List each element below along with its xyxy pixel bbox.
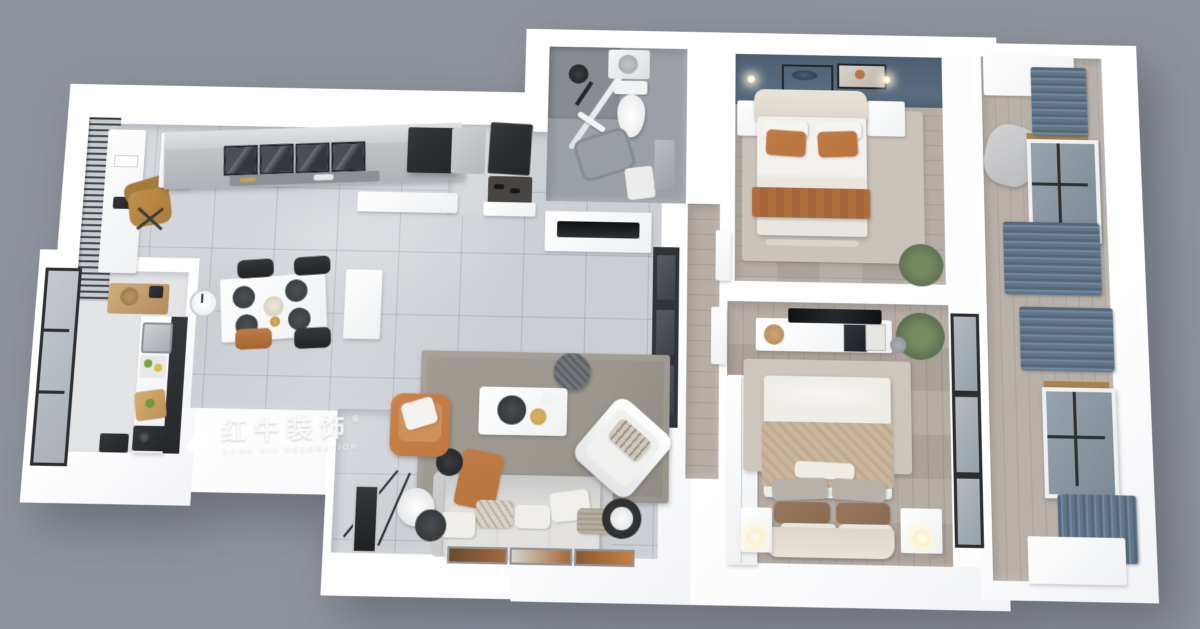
bedroom1-plant bbox=[899, 244, 944, 287]
window-mullion-h bbox=[1032, 182, 1088, 186]
kitchen-sink bbox=[141, 322, 174, 353]
kitchen-stove bbox=[132, 426, 169, 452]
cabinet-glass-door-4 bbox=[331, 141, 365, 172]
balcony-curtain-2 bbox=[1003, 222, 1102, 296]
balcony-bottom-box bbox=[1027, 536, 1126, 585]
kitchen-window-mullion-1 bbox=[43, 329, 70, 333]
dining-column-cabinet bbox=[343, 269, 383, 339]
hall-console-niche bbox=[557, 221, 640, 239]
bedroom2-pillow-gray-right bbox=[831, 478, 886, 503]
dining-chair-black-1 bbox=[237, 258, 274, 279]
dresser-poster-light bbox=[865, 324, 886, 351]
bedroom1-wall-lamp-right bbox=[883, 76, 891, 84]
balcony-curtain-3 bbox=[1019, 307, 1115, 372]
entry-tall-cabinet bbox=[407, 127, 456, 173]
watermark: 红牛装饰® HONG NIU DECORATION bbox=[185, 415, 350, 475]
cabinet-glass-door-2 bbox=[260, 144, 294, 175]
render-stage: 红牛装饰® HONG NIU DECORATION bbox=[0, 0, 1200, 600]
bedroom1-pillow-rust-right bbox=[817, 131, 858, 158]
bedroom2-window-2 bbox=[952, 394, 982, 476]
entry-shoes-2 bbox=[510, 188, 520, 193]
kitchen-pot bbox=[149, 286, 164, 298]
bedroom2-tv bbox=[788, 308, 881, 324]
entry-step bbox=[483, 202, 535, 217]
floor-frame-1 bbox=[447, 546, 508, 564]
bull-logo-icon bbox=[181, 424, 216, 461]
bedroom2-stool bbox=[890, 337, 907, 354]
cabinet-glass-door-1 bbox=[224, 145, 258, 176]
cabinet-glass-door-3 bbox=[296, 143, 330, 174]
balcony-divider-wall bbox=[941, 56, 978, 306]
watermark-brand-cn: 红牛装饰® bbox=[221, 415, 351, 446]
bedroom2-pillow-gray-left bbox=[771, 478, 828, 501]
entry-door-panel bbox=[488, 122, 533, 175]
sofa-pillow-patterned bbox=[475, 500, 513, 528]
balcony-window-2 bbox=[1042, 387, 1120, 500]
floor-frame-3 bbox=[574, 549, 635, 567]
entry-shoes bbox=[494, 184, 504, 189]
dresser-basket bbox=[764, 324, 784, 345]
desk-keyboard bbox=[114, 155, 139, 167]
utensil-gold bbox=[240, 178, 256, 182]
floor-frame-2 bbox=[509, 547, 572, 565]
toilet-tank bbox=[614, 81, 648, 95]
bedroom1-bed-runner bbox=[752, 187, 870, 219]
kitchen-appliance bbox=[99, 433, 129, 452]
sofa-pillow-white-2 bbox=[515, 505, 551, 529]
dining-chair-black-3 bbox=[294, 327, 331, 349]
bedroom1-frame-2-art bbox=[855, 70, 865, 80]
bedroom2-door-panel bbox=[711, 307, 727, 365]
dining-chair-black-2 bbox=[294, 255, 331, 276]
dining-chair-orange bbox=[235, 328, 272, 350]
bath-vanity bbox=[654, 140, 675, 190]
leaning-artwork bbox=[352, 485, 380, 554]
display-glass-2 bbox=[656, 310, 675, 355]
bedroom2-pillow-brown-right bbox=[836, 503, 890, 525]
bedroom2-headboard bbox=[766, 527, 895, 560]
bedroom1-frame-1-art bbox=[792, 70, 818, 80]
bedroom2-pillow-brown-left bbox=[774, 501, 830, 523]
apartment-floor-plan: 红牛装饰® HONG NIU DECORATION bbox=[0, 0, 1200, 629]
bedroom1-nightstand-right bbox=[867, 101, 905, 137]
window-mullion bbox=[1057, 143, 1063, 230]
bedroom2-window-3 bbox=[954, 475, 985, 548]
bedroom2-lamp-left bbox=[747, 529, 764, 546]
bedroom2-plant bbox=[896, 312, 946, 360]
bedroom1-pillow-rust-left bbox=[765, 129, 806, 157]
balcony-curtain-1 bbox=[1030, 67, 1088, 136]
window-mullion-2h bbox=[1047, 435, 1105, 439]
utensil-white bbox=[314, 174, 334, 181]
registered-mark: ® bbox=[352, 413, 366, 424]
watermark-brand-en: HONG NIU DECORATION bbox=[223, 444, 351, 456]
bedroom2-lamp-right bbox=[913, 530, 930, 547]
dresser-poster-dark bbox=[843, 324, 868, 353]
bedroom1-wall-lamp-left bbox=[747, 75, 755, 83]
bedroom1-door-panel bbox=[715, 230, 730, 281]
bath-mat-white bbox=[624, 165, 656, 200]
display-glass-1 bbox=[657, 255, 676, 300]
bedroom2-window-1 bbox=[950, 313, 980, 394]
kitchen-pass-counter bbox=[357, 191, 458, 213]
kitchen-window-mullion-2 bbox=[38, 390, 65, 394]
window-mullion-2 bbox=[1073, 392, 1079, 486]
entry-shoe-cabinet bbox=[451, 128, 486, 174]
